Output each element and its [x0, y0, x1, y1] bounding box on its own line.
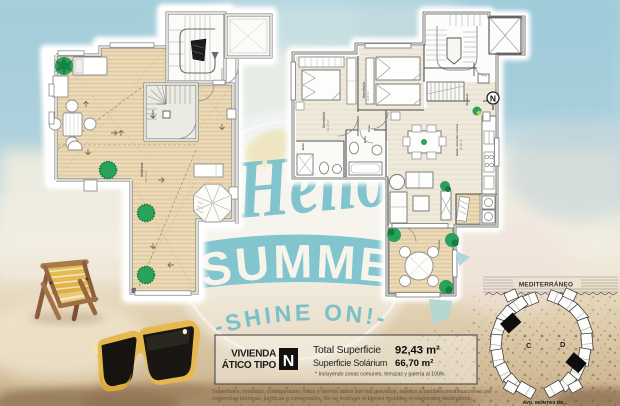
svg-text:92,43 m²: 92,43 m²	[395, 345, 440, 357]
svg-text:exigencias técnicas, jurídicas: exigencias técnicas, jurídicas o comerci…	[212, 396, 472, 402]
svg-text:Terraza: Terraza	[437, 240, 441, 250]
svg-text:66,70 m²: 66,70 m²	[395, 358, 433, 369]
svg-text:C: C	[526, 341, 532, 350]
svg-text:12,35 m²: 12,35 m²	[326, 120, 330, 131]
svg-text:MEDITERRÁNEO: MEDITERRÁNEO	[519, 280, 573, 289]
svg-text:Total Superficie: Total Superficie	[313, 345, 381, 356]
svg-text:Baño: Baño	[301, 143, 305, 150]
svg-text:20,46 m²: 20,46 m²	[459, 139, 463, 150]
svg-text:ÁTICO TIPO: ÁTICO TIPO	[222, 358, 277, 371]
svg-text:Superficies, medidas, configur: Superficies, medidas, configuración, hit…	[212, 389, 492, 395]
svg-text:Paso: Paso	[367, 125, 371, 132]
svg-text:N: N	[283, 353, 295, 370]
svg-text:Vestíbulo: Vestíbulo	[465, 93, 469, 106]
svg-text:66,70 m²: 66,70 m²	[144, 170, 148, 182]
svg-text:Superficie Solárium: Superficie Solárium	[313, 358, 387, 368]
svg-text:9,60 m²: 9,60 m²	[366, 91, 370, 101]
svg-text:VIVIENDA: VIVIENDA	[231, 349, 276, 360]
svg-text:* Incluyendo zonas comunes, te: * Incluyendo zonas comunes, terrazas y g…	[315, 372, 446, 378]
svg-text:D: D	[560, 340, 566, 349]
svg-text:AVD. MONTES DE...: AVD. MONTES DE...	[523, 400, 568, 406]
svg-text:N: N	[490, 93, 496, 103]
